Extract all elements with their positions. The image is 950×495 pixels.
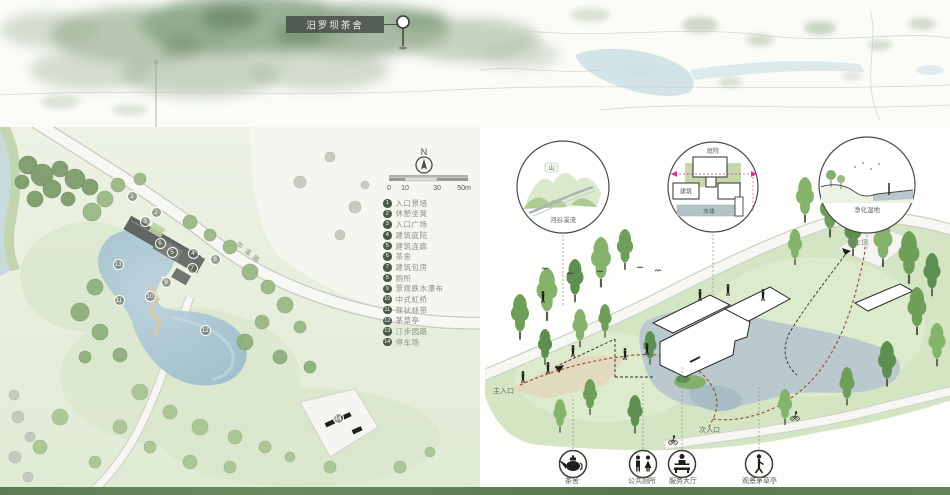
legend-item: 8厕所 — [383, 274, 444, 283]
legend-num: 13 — [383, 327, 392, 336]
aerial-map-art: 汨罗坝茶舍 — [0, 0, 950, 127]
bubble3-caption: 净化湿地 — [854, 205, 881, 214]
legend-item: 3入口广场 — [383, 220, 444, 229]
legend-item: 1入口景墙 — [383, 199, 444, 208]
mountain-tag: 山 — [548, 164, 554, 172]
legend-num: 10 — [383, 295, 392, 304]
legend-item: 13汀步园路 — [383, 327, 444, 336]
legend-label: 景观跌水瀑布 — [396, 283, 444, 294]
plan-marker-11: 11 — [114, 295, 125, 306]
plan-marker-4: 4 — [188, 248, 199, 259]
scale-tick-0: 0 — [387, 185, 391, 192]
plan-marker-5: 5 — [167, 247, 178, 258]
pond-island — [674, 375, 706, 389]
legend-num: 1 — [383, 199, 392, 208]
legend-num: 6 — [383, 252, 392, 261]
bubble-valley-stream: 山 河谷溪流 — [517, 141, 609, 233]
legend-label: 茶舍 — [396, 251, 412, 262]
plan-marker-7: 7 — [187, 263, 198, 274]
courtyard-label: 庭院 — [707, 147, 719, 155]
scale-tick-10: 10 — [401, 185, 409, 192]
scale-tick-30: 30 — [433, 185, 441, 192]
legend-item: 7建筑包房 — [383, 263, 444, 272]
legend-num: 14 — [383, 338, 392, 347]
legend-item: 10中式虹桥 — [383, 295, 444, 304]
public-toilet-icon — [630, 451, 657, 478]
waterbody-label: 水体 — [703, 208, 715, 216]
legend-item: 11现状林带 — [383, 306, 444, 315]
legend-label: 建筑庭院 — [396, 230, 428, 241]
plan-marker-14: 14 — [333, 413, 344, 424]
viewing-pavilion-icon — [746, 451, 773, 478]
bubble-courtyard-diagram: 庭院 建筑 水体 — [668, 142, 758, 232]
legend-item: 14停车场 — [383, 338, 444, 347]
legend-item: 2休憩坐凳 — [383, 210, 444, 219]
legend-num: 5 — [383, 242, 392, 251]
facility-label-teahouse: 茶舍 — [565, 476, 579, 485]
facility-label-toilet: 公共厕所 — [628, 476, 656, 485]
legend-label: 建筑包房 — [396, 262, 428, 273]
north-label: N — [421, 147, 428, 157]
plan-legend: 1入口景墙 2休憩坐凳 3入口广场 4建筑庭院 5建筑连廊 6茶舍 7建筑包房 … — [383, 199, 444, 346]
legend-item: 4建筑庭院 — [383, 231, 444, 240]
legend-label: 建筑连廊 — [396, 241, 428, 252]
bubble1-caption: 河谷溪流 — [550, 215, 577, 224]
axonometric-view: 主入口 次入口 停车场 山 河谷溪流 — [485, 127, 950, 487]
plan-marker-10: 10 — [145, 291, 156, 302]
legend-label: 休憩坐凳 — [396, 208, 428, 219]
legend-num: 11 — [383, 306, 392, 315]
facility-label-service-hall: 服务大厅 — [669, 476, 697, 485]
legend-label: 汀步园路 — [396, 326, 428, 337]
plan-marker-1: 1 — [127, 191, 138, 202]
legend-label: 现状林带 — [396, 305, 428, 316]
plan-marker-9: 9 — [161, 277, 172, 288]
presentation-board: 汨罗坝茶舍 — [0, 0, 950, 495]
legend-item: 12茅草亭 — [383, 317, 444, 326]
facility-icons — [559, 451, 773, 478]
legend-item: 6茶舍 — [383, 252, 444, 261]
site-label-group: 汨罗坝茶舍 — [286, 16, 397, 33]
legend-item: 5建筑连廊 — [383, 242, 444, 251]
legend-num: 9 — [383, 285, 392, 294]
legend-label: 茅草亭 — [396, 315, 420, 326]
scale-tick-50m: 50m — [457, 185, 471, 192]
legend-num: 8 — [383, 274, 392, 283]
plan-marker-12: 12 — [200, 325, 211, 336]
legend-label: 入口广场 — [396, 219, 428, 230]
legend-label: 中式虹桥 — [396, 294, 428, 305]
main-entrance-label: 主入口 — [493, 386, 514, 395]
legend-num: 4 — [383, 231, 392, 240]
bubble-wetland-section: 净化湿地 — [819, 137, 915, 233]
facility-label-pavilion: 观景茅草亭 — [742, 476, 777, 485]
plan-marker-13: 13 — [113, 259, 124, 270]
legend-item: 9景观跌水瀑布 — [383, 285, 444, 294]
aerial-map: 汨罗坝茶舍 — [0, 0, 950, 127]
bottom-green-strip — [0, 487, 950, 495]
legend-num: 12 — [383, 317, 392, 326]
plan-marker-3: 3 — [140, 216, 151, 227]
legend-num: 7 — [383, 263, 392, 272]
service-hall-icon — [669, 451, 696, 478]
plan-marker-8: 8 — [210, 254, 221, 265]
axonometric-art: 主入口 次入口 停车场 山 河谷溪流 — [485, 127, 950, 487]
plan-marker-6: 6 — [155, 238, 166, 249]
secondary-entrance-label: 次入口 — [699, 425, 720, 434]
legend-num: 2 — [383, 210, 392, 219]
legend-label: 停车场 — [396, 337, 420, 348]
building-label: 建筑 — [680, 188, 692, 196]
parking-label: 停车场 — [847, 238, 868, 247]
teahouse-icon — [559, 451, 587, 478]
legend-num: 3 — [383, 220, 392, 229]
legend-label: 入口景墙 — [396, 198, 428, 209]
plan-marker-2: 2 — [151, 207, 162, 218]
site-plan: 华溪路 N 0 10 30 50m 1 2 3 4 5 6 — [0, 127, 480, 487]
site-label: 汨罗坝茶舍 — [306, 20, 364, 32]
legend-label: 厕所 — [396, 273, 412, 284]
